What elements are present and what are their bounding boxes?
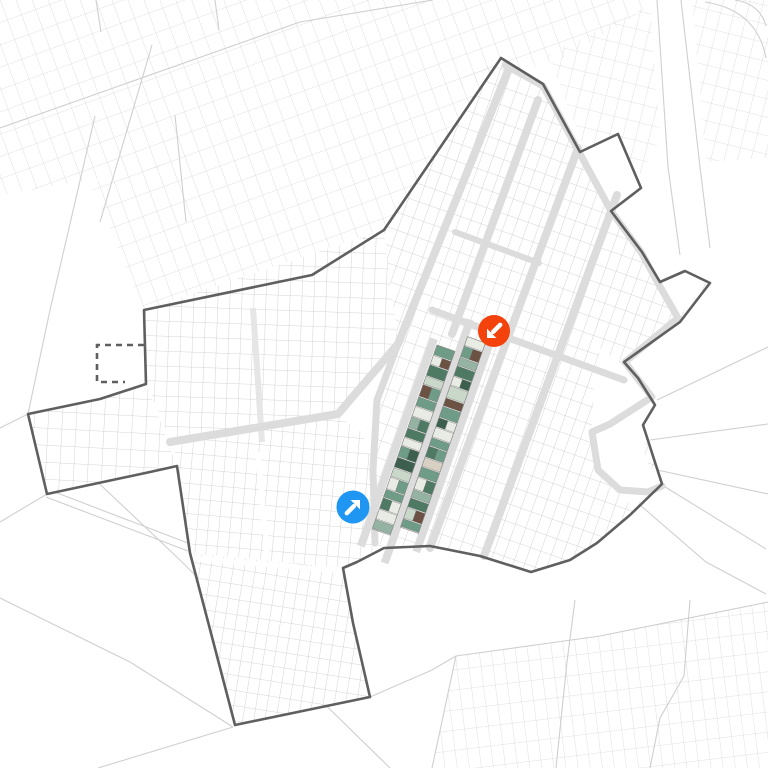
urban-plan-map: [0, 0, 768, 768]
blue-arrow-marker[interactable]: [337, 491, 370, 524]
map-viewport: [0, 0, 768, 768]
red-arrow-marker[interactable]: [478, 315, 510, 347]
